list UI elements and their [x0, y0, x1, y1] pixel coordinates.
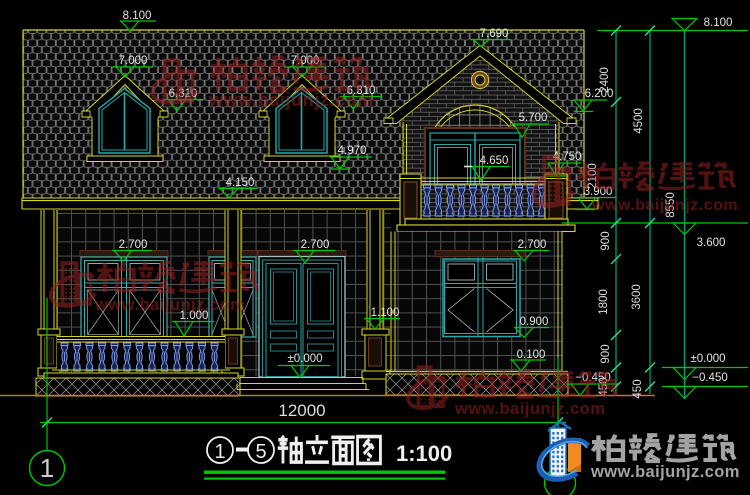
svg-text:±0.000: ±0.000 — [287, 353, 322, 365]
svg-text:7.000: 7.000 — [119, 55, 148, 67]
svg-text:8.100: 8.100 — [704, 17, 733, 29]
svg-text:2.700: 2.700 — [518, 239, 547, 251]
svg-text:5.700: 5.700 — [519, 112, 548, 124]
svg-text:1: 1 — [214, 441, 225, 463]
svg-text:4.650: 4.650 — [480, 155, 509, 167]
svg-text:2.700: 2.700 — [119, 239, 148, 251]
svg-text:900: 900 — [600, 231, 612, 250]
svg-text:8.100: 8.100 — [123, 10, 152, 22]
svg-text:5: 5 — [255, 441, 266, 463]
svg-text:1: 1 — [40, 453, 54, 483]
svg-text:www.baijunjz.com: www.baijunjz.com — [591, 197, 738, 214]
svg-text:www.baijunjz.com: www.baijunjz.com — [208, 90, 374, 110]
svg-text:www.baijunjz.com: www.baijunjz.com — [590, 463, 740, 481]
svg-text:1:100: 1:100 — [396, 441, 452, 466]
svg-text:±0.000: ±0.000 — [690, 353, 725, 365]
svg-text:12000: 12000 — [278, 401, 325, 420]
svg-text:1800: 1800 — [598, 289, 610, 315]
svg-text:2.700: 2.700 — [301, 239, 330, 251]
svg-text:−0.450: −0.450 — [692, 372, 728, 384]
svg-text:3600: 3600 — [631, 284, 643, 310]
svg-text:2400: 2400 — [599, 67, 611, 93]
svg-text:0.900: 0.900 — [520, 316, 549, 328]
svg-text:1.100: 1.100 — [371, 307, 400, 319]
svg-text:900: 900 — [600, 344, 612, 363]
svg-text:www.baijunjz.com: www.baijunjz.com — [454, 400, 605, 418]
svg-text:450: 450 — [632, 379, 644, 398]
svg-text:0.100: 0.100 — [517, 349, 546, 361]
svg-text:4.970: 4.970 — [338, 145, 367, 157]
svg-text:4500: 4500 — [633, 108, 645, 134]
svg-text:4.150: 4.150 — [226, 177, 255, 189]
svg-text:3.600: 3.600 — [697, 237, 726, 249]
svg-text:www.baijunjz.com: www.baijunjz.com — [94, 296, 245, 314]
svg-text:7.690: 7.690 — [480, 28, 509, 40]
